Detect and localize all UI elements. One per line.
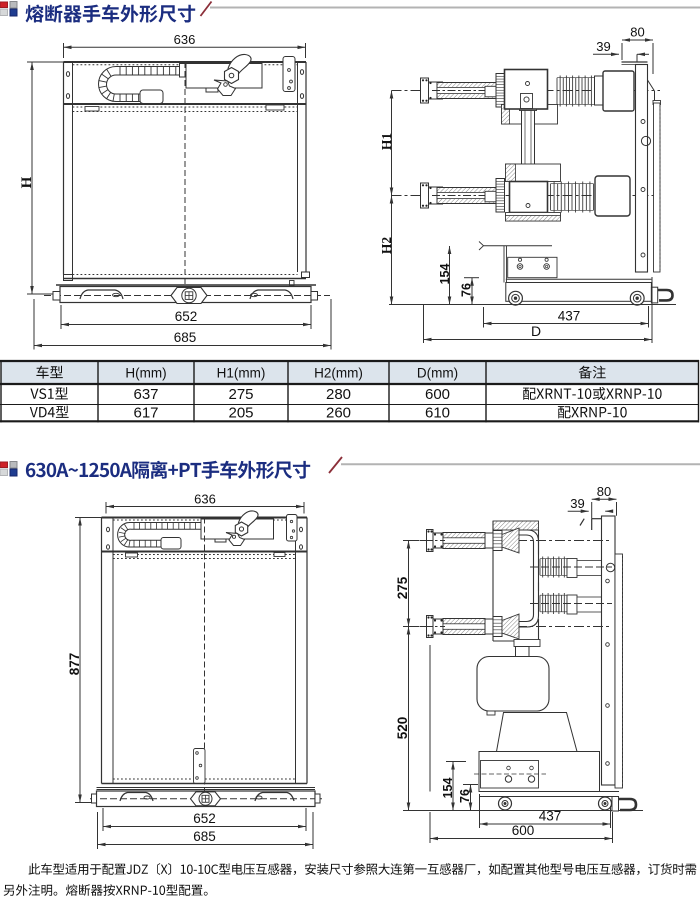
svg-text:437: 437	[539, 809, 562, 824]
svg-text:205: 205	[228, 405, 253, 422]
svg-text:H(mm): H(mm)	[125, 366, 166, 381]
svg-text:520: 520	[395, 717, 410, 740]
svg-text:652: 652	[193, 811, 216, 826]
svg-text:685: 685	[174, 330, 197, 345]
svg-text:260: 260	[326, 405, 351, 422]
svg-text:652: 652	[175, 309, 198, 324]
svg-text:617: 617	[133, 405, 158, 422]
svg-text:685: 685	[193, 829, 216, 844]
svg-text:154: 154	[441, 778, 455, 799]
svg-text:610: 610	[425, 405, 450, 422]
svg-text:877: 877	[67, 653, 82, 676]
svg-text:80: 80	[597, 484, 611, 499]
svg-text:76: 76	[460, 283, 474, 297]
svg-text:80: 80	[630, 25, 644, 40]
svg-text:636: 636	[194, 491, 216, 506]
svg-text:600: 600	[425, 386, 450, 403]
svg-text:H2(mm): H2(mm)	[314, 366, 363, 381]
svg-text:154: 154	[438, 264, 452, 285]
svg-text:H1: H1	[379, 133, 394, 151]
svg-text:600: 600	[512, 823, 535, 838]
svg-text:D: D	[531, 323, 541, 339]
svg-text:76: 76	[458, 789, 472, 803]
svg-text:437: 437	[558, 309, 581, 324]
svg-text:H2: H2	[379, 237, 394, 255]
svg-text:636: 636	[174, 32, 196, 47]
svg-text:39: 39	[596, 39, 610, 54]
svg-text:280: 280	[326, 386, 351, 403]
svg-text:39: 39	[570, 496, 584, 511]
svg-text:637: 637	[133, 386, 158, 403]
svg-text:H: H	[19, 176, 35, 188]
svg-text:275: 275	[395, 576, 410, 599]
svg-text:D(mm): D(mm)	[417, 366, 458, 381]
svg-text:275: 275	[228, 386, 253, 403]
svg-text:H1(mm): H1(mm)	[217, 366, 266, 381]
